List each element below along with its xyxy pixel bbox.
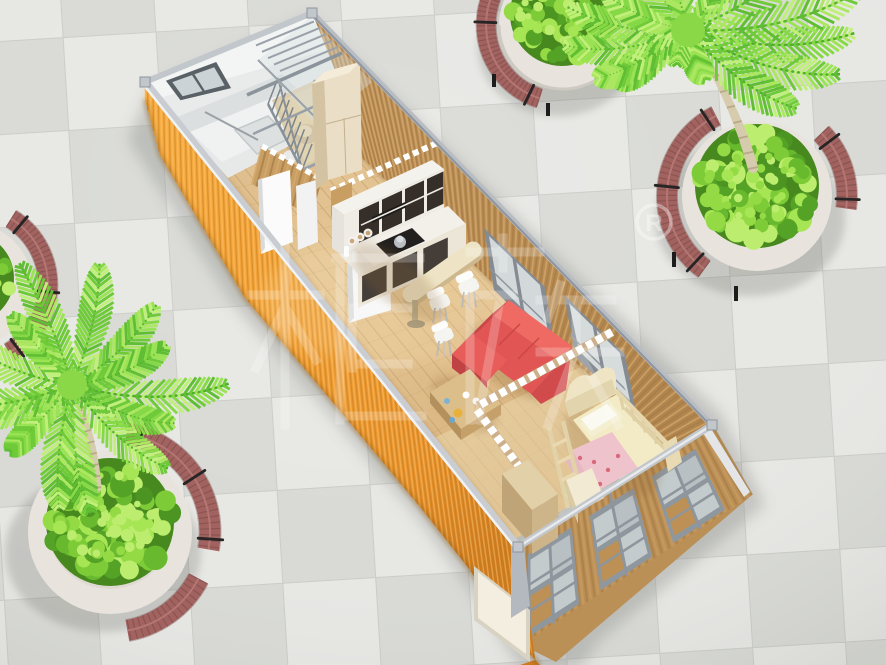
svg-text:R: R	[645, 210, 662, 237]
